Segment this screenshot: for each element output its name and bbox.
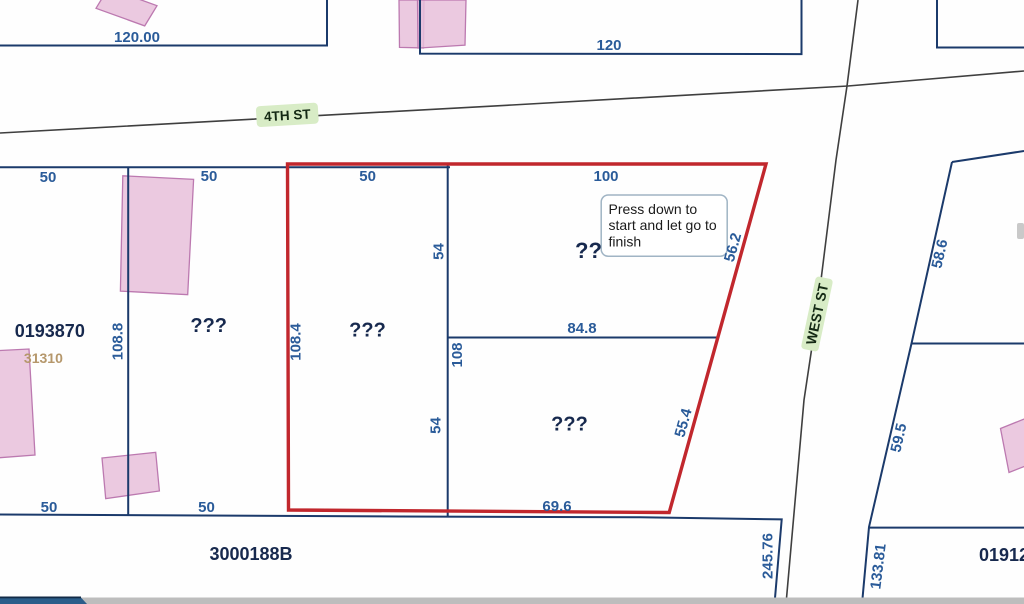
svg-text:???: ??? [349,320,386,342]
svg-text:50: 50 [40,169,57,186]
svg-text:108.4: 108.4 [288,323,305,361]
svg-text:3000188B: 3000188B [209,544,292,564]
svg-text:120.00: 120.00 [114,29,160,46]
svg-text:245.76: 245.76 [760,533,777,579]
svg-text:finish: finish [609,233,642,249]
svg-text:??: ?? [575,238,602,263]
svg-text:01912: 01912 [979,545,1024,565]
svg-text:84.8: 84.8 [567,320,596,337]
svg-text:108.8: 108.8 [110,323,127,361]
svg-text:start and let go to: start and let go to [609,217,717,233]
svg-text:50: 50 [41,499,58,516]
svg-text:100: 100 [593,168,618,185]
svg-text:50: 50 [198,499,215,516]
svg-text:Press down to: Press down to [609,201,698,217]
svg-text:108: 108 [449,342,466,367]
svg-text:4TH ST: 4TH ST [264,106,312,124]
svg-text:50: 50 [359,168,376,185]
svg-text:69.6: 69.6 [542,498,571,515]
svg-text:54: 54 [428,417,445,434]
svg-text:???: ??? [190,315,227,337]
svg-text:31310: 31310 [24,350,63,366]
svg-text:0193870: 0193870 [15,321,85,341]
svg-text:54: 54 [431,243,448,260]
svg-text:50: 50 [201,168,218,185]
svg-text:???: ??? [551,414,588,436]
svg-text:120: 120 [596,37,621,54]
